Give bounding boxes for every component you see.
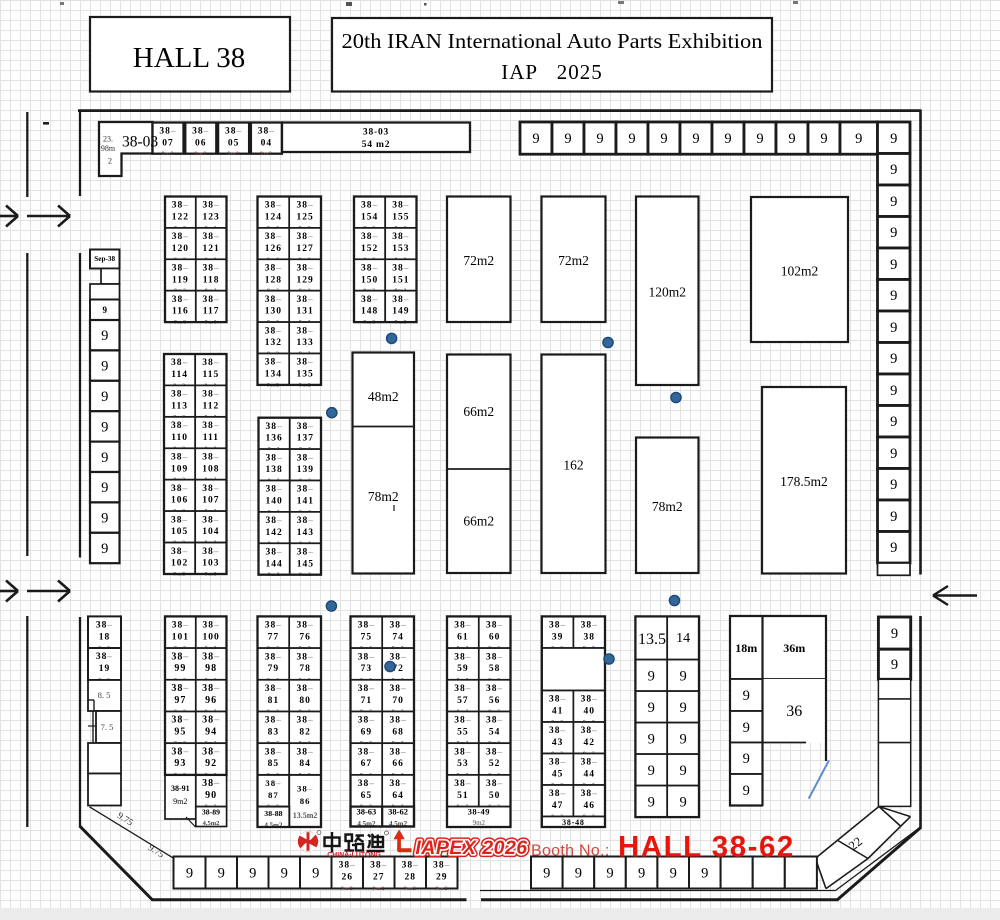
svg-text:151: 151	[392, 275, 409, 285]
svg-text:9: 9	[756, 131, 763, 147]
svg-text:107: 107	[202, 496, 219, 506]
svg-text:4.5m2: 4.5m2	[203, 820, 220, 827]
svg-text:38–: 38–	[361, 295, 378, 305]
svg-text:38–: 38–	[202, 264, 219, 274]
svg-text:38–: 38–	[549, 621, 566, 631]
svg-text:57: 57	[457, 696, 469, 706]
svg-text:38–: 38–	[265, 747, 282, 757]
svg-text:149: 149	[392, 307, 409, 317]
svg-text:38–: 38–	[296, 201, 313, 211]
svg-text:13.5: 13.5	[638, 631, 666, 648]
svg-text:38–: 38–	[171, 651, 189, 662]
svg-text:38–: 38–	[202, 232, 219, 242]
svg-text:20th IRAN International Auto P: 20th IRAN International Auto Parts Exhib…	[342, 29, 764, 53]
svg-text:38–: 38–	[486, 716, 503, 726]
svg-text:38–: 38–	[581, 695, 598, 705]
svg-text:9: 9	[101, 328, 108, 344]
svg-text:38–: 38–	[258, 127, 275, 137]
svg-text:80: 80	[299, 696, 311, 706]
svg-text:129: 129	[296, 275, 313, 285]
svg-text:38–: 38–	[454, 716, 471, 726]
svg-text:9.75: 9.75	[146, 843, 166, 861]
svg-text:114: 114	[171, 370, 188, 380]
svg-text:131: 131	[296, 307, 313, 317]
svg-text:72m2: 72m2	[558, 253, 589, 268]
svg-text:19: 19	[99, 664, 111, 674]
svg-text:90: 90	[205, 790, 217, 801]
svg-text:38-89: 38-89	[202, 808, 220, 817]
svg-text:142: 142	[265, 528, 282, 538]
svg-text:38–: 38–	[171, 746, 189, 757]
svg-text:9: 9	[679, 668, 686, 684]
svg-text:38–: 38–	[486, 747, 503, 757]
svg-text:94: 94	[205, 727, 217, 738]
svg-text:38–: 38–	[202, 390, 219, 400]
svg-text:150: 150	[361, 275, 378, 285]
svg-text:38–: 38–	[297, 784, 313, 794]
svg-text:152: 152	[361, 244, 378, 254]
svg-text:38–: 38–	[358, 779, 375, 789]
svg-text:133: 133	[296, 338, 313, 348]
svg-text:9: 9	[660, 131, 667, 147]
svg-text:Booth No.:: Booth No.:	[531, 843, 610, 860]
svg-text:38–: 38–	[265, 548, 282, 558]
svg-text:9: 9	[743, 688, 750, 704]
svg-text:9: 9	[890, 320, 897, 336]
svg-text:38–: 38–	[549, 695, 566, 705]
svg-text:38–: 38–	[361, 264, 378, 274]
svg-text:81: 81	[268, 696, 280, 706]
svg-text:66: 66	[392, 759, 404, 769]
svg-text:54 m2: 54 m2	[362, 140, 391, 150]
svg-text:9: 9	[186, 866, 193, 882]
svg-text:2: 2	[108, 157, 112, 166]
svg-text:95: 95	[174, 727, 186, 738]
svg-text:101: 101	[172, 632, 189, 642]
svg-text:99: 99	[174, 663, 186, 674]
svg-text:38–: 38–	[202, 651, 220, 662]
svg-text:86: 86	[300, 796, 311, 806]
svg-text:9m2: 9m2	[195, 151, 207, 157]
svg-text:97: 97	[174, 695, 186, 706]
svg-text:38–: 38–	[296, 747, 313, 757]
svg-text:38–: 38–	[202, 201, 219, 211]
svg-text:38–: 38–	[296, 264, 313, 274]
svg-text:135: 135	[296, 370, 313, 380]
svg-text:9: 9	[679, 763, 686, 779]
svg-text:38–: 38–	[402, 861, 419, 871]
svg-text:HALL 38: HALL 38	[133, 42, 246, 74]
svg-text:9: 9	[606, 866, 613, 882]
svg-text:9: 9	[249, 866, 256, 882]
svg-text:9: 9	[891, 626, 898, 642]
svg-text:38–: 38–	[265, 485, 282, 495]
svg-text:9: 9	[701, 866, 708, 882]
svg-text:38–: 38–	[454, 684, 471, 694]
svg-text:9: 9	[890, 131, 897, 147]
svg-text:9: 9	[743, 720, 750, 736]
svg-text:9: 9	[101, 541, 108, 557]
svg-text:38–: 38–	[202, 547, 219, 557]
svg-text:38–: 38–	[296, 716, 313, 726]
svg-text:38–: 38–	[171, 515, 188, 525]
svg-text:9: 9	[788, 131, 795, 147]
svg-text:78: 78	[299, 664, 311, 674]
svg-text:9: 9	[628, 131, 635, 147]
svg-text:9: 9	[575, 866, 582, 882]
svg-text:9.75: 9.75	[115, 811, 135, 829]
svg-text:51: 51	[457, 791, 469, 801]
svg-text:162: 162	[563, 458, 583, 473]
svg-text:9: 9	[648, 763, 655, 779]
svg-text:9m2: 9m2	[227, 151, 239, 157]
svg-text:138: 138	[265, 465, 282, 475]
svg-text:38–: 38–	[265, 621, 282, 631]
svg-text:9: 9	[543, 866, 550, 882]
svg-text:123: 123	[202, 213, 219, 223]
svg-text:38–: 38–	[389, 747, 406, 757]
svg-text:83: 83	[268, 728, 280, 738]
svg-text:38–: 38–	[202, 421, 219, 431]
svg-text:38–: 38–	[225, 127, 242, 137]
svg-text:38–: 38–	[172, 201, 189, 211]
svg-text:18m: 18m	[735, 641, 757, 655]
svg-text:38–: 38–	[389, 684, 406, 694]
svg-text:38–: 38–	[265, 516, 282, 526]
svg-text:38–: 38–	[172, 264, 189, 274]
svg-text:103: 103	[202, 559, 219, 569]
svg-text:9: 9	[679, 700, 686, 716]
svg-text:60: 60	[489, 632, 501, 642]
svg-text:38–: 38–	[172, 621, 189, 631]
svg-text:38–: 38–	[392, 295, 409, 305]
svg-text:06: 06	[195, 139, 207, 149]
svg-text:9: 9	[101, 480, 108, 496]
svg-text:9: 9	[692, 131, 699, 147]
svg-text:121: 121	[202, 244, 219, 254]
svg-text:9: 9	[218, 866, 225, 882]
svg-text:38–: 38–	[171, 484, 188, 494]
svg-text:58: 58	[489, 664, 501, 674]
svg-text:38–: 38–	[454, 652, 471, 662]
svg-text:110: 110	[171, 433, 188, 443]
svg-text:66m2: 66m2	[463, 404, 494, 419]
svg-text:112: 112	[203, 401, 220, 411]
svg-text:38–: 38–	[265, 652, 282, 662]
svg-text:9: 9	[855, 131, 862, 147]
svg-text:38–: 38–	[296, 358, 313, 368]
svg-text:38–: 38–	[265, 295, 282, 305]
svg-text:9: 9	[890, 162, 897, 178]
svg-text:9m2: 9m2	[436, 886, 448, 892]
svg-text:136: 136	[265, 434, 282, 444]
svg-text:38–: 38–	[265, 264, 282, 274]
svg-text:38–: 38–	[296, 326, 313, 336]
svg-text:9: 9	[890, 509, 897, 525]
svg-text:108: 108	[202, 464, 219, 474]
svg-text:9: 9	[648, 794, 655, 810]
svg-text:38–: 38–	[361, 201, 378, 211]
svg-text:7. 5: 7. 5	[101, 722, 114, 732]
svg-text:9m2: 9m2	[173, 797, 187, 806]
svg-text:75: 75	[361, 632, 373, 642]
svg-text:38–: 38–	[392, 232, 409, 242]
svg-text:9: 9	[648, 731, 655, 747]
svg-text:120m2: 120m2	[648, 285, 686, 300]
svg-text:38–: 38–	[172, 232, 189, 242]
svg-text:70: 70	[392, 696, 404, 706]
svg-text:36: 36	[786, 703, 802, 720]
svg-text:9: 9	[679, 794, 686, 810]
svg-text:38–: 38–	[265, 358, 282, 368]
svg-text:115: 115	[203, 370, 220, 380]
svg-text:38–: 38–	[172, 295, 189, 305]
svg-text:38–: 38–	[297, 453, 314, 463]
svg-text:93: 93	[174, 758, 186, 769]
svg-text:07: 07	[162, 139, 174, 149]
svg-text:85: 85	[268, 759, 280, 769]
svg-text:96: 96	[205, 695, 217, 706]
svg-text:9: 9	[820, 131, 827, 147]
svg-text:38–: 38–	[358, 716, 375, 726]
svg-text:105: 105	[171, 527, 188, 537]
svg-text:56: 56	[489, 696, 501, 706]
svg-text:9: 9	[532, 131, 539, 147]
svg-text:27: 27	[373, 873, 385, 883]
svg-text:9: 9	[101, 359, 108, 375]
svg-text:53: 53	[457, 759, 469, 769]
svg-text:141: 141	[297, 497, 314, 507]
svg-text:9: 9	[670, 866, 677, 882]
svg-text:119: 119	[172, 275, 189, 285]
svg-text:144: 144	[265, 559, 282, 569]
svg-text:9: 9	[743, 783, 750, 799]
svg-text:38–: 38–	[297, 548, 314, 558]
svg-text:9: 9	[890, 288, 897, 304]
svg-text:78m2: 78m2	[368, 489, 399, 504]
svg-text:148: 148	[361, 307, 378, 317]
svg-text:145: 145	[297, 559, 314, 569]
svg-text:87: 87	[268, 790, 279, 800]
svg-text:38–: 38–	[370, 861, 387, 871]
svg-text:38–: 38–	[171, 715, 189, 726]
svg-text:38–: 38–	[265, 326, 282, 336]
svg-text:92: 92	[205, 758, 217, 769]
svg-text:116: 116	[172, 307, 189, 317]
svg-text:98m: 98m	[101, 144, 116, 153]
svg-text:CHINA-LUTONG: CHINA-LUTONG	[327, 851, 381, 858]
svg-text:76: 76	[299, 632, 311, 642]
svg-text:113: 113	[171, 401, 188, 411]
svg-text:72m2: 72m2	[463, 253, 494, 268]
svg-text:38–: 38–	[389, 779, 406, 789]
svg-text:38–: 38–	[581, 789, 598, 799]
svg-text:38–: 38–	[265, 778, 281, 788]
svg-text:106: 106	[171, 496, 188, 506]
svg-text:38–: 38–	[171, 390, 188, 400]
svg-text:9: 9	[596, 131, 603, 147]
svg-text:9: 9	[638, 866, 645, 882]
svg-text:77: 77	[268, 632, 280, 642]
svg-text:38–: 38–	[171, 453, 188, 463]
svg-text:38-03: 38-03	[363, 128, 389, 138]
svg-text:38–: 38–	[96, 652, 113, 662]
svg-text:38–: 38–	[265, 684, 282, 694]
svg-text:66m2: 66m2	[463, 514, 494, 529]
svg-text:Sep-38: Sep-38	[94, 255, 115, 263]
svg-text:130: 130	[265, 307, 282, 317]
svg-text:9: 9	[281, 866, 288, 882]
svg-text:38–: 38–	[361, 232, 378, 242]
svg-text:128: 128	[265, 275, 282, 285]
svg-text:54: 54	[489, 728, 501, 738]
svg-text:38–: 38–	[265, 453, 282, 463]
svg-text:9: 9	[101, 511, 108, 527]
svg-text:9: 9	[312, 866, 319, 882]
svg-text:140: 140	[265, 497, 282, 507]
svg-text:139: 139	[297, 465, 314, 475]
svg-text:38–: 38–	[581, 621, 598, 631]
svg-text:9: 9	[101, 450, 108, 466]
svg-text:71: 71	[361, 696, 373, 706]
svg-text:38–: 38–	[296, 684, 313, 694]
svg-text:9: 9	[724, 131, 731, 147]
svg-text:38–: 38–	[486, 652, 503, 662]
svg-text:61: 61	[457, 632, 469, 642]
svg-text:38–: 38–	[454, 747, 471, 757]
svg-text:38-62: 38-62	[388, 807, 408, 817]
svg-text:38–: 38–	[549, 726, 566, 736]
svg-text:38–: 38–	[358, 652, 375, 662]
svg-text:102: 102	[171, 559, 188, 569]
svg-text:38-63: 38-63	[356, 807, 376, 817]
svg-text:9m2: 9m2	[162, 151, 174, 157]
svg-text:155: 155	[392, 213, 409, 223]
svg-text:124: 124	[265, 213, 282, 223]
svg-text:9: 9	[648, 668, 655, 684]
svg-text:44: 44	[583, 770, 595, 780]
svg-text:9: 9	[890, 540, 897, 556]
svg-text:38–: 38–	[392, 264, 409, 274]
svg-text:36m: 36m	[783, 641, 805, 655]
svg-text:9: 9	[101, 419, 108, 435]
svg-text:42: 42	[583, 738, 595, 748]
svg-text:14: 14	[676, 631, 690, 646]
svg-text:38–: 38–	[96, 621, 113, 631]
svg-text:38–: 38–	[265, 232, 282, 242]
svg-text:48m2: 48m2	[368, 389, 399, 404]
svg-text:38–: 38–	[389, 652, 406, 662]
svg-text:9: 9	[890, 414, 897, 430]
svg-text:98: 98	[205, 663, 217, 674]
svg-text:38–: 38–	[358, 621, 375, 631]
svg-text:50: 50	[489, 791, 501, 801]
svg-text:67: 67	[361, 759, 373, 769]
svg-text:38: 38	[583, 632, 595, 642]
svg-text:84: 84	[299, 759, 311, 769]
svg-text:38–: 38–	[202, 484, 219, 494]
svg-text:153: 153	[392, 244, 409, 254]
svg-text:9m2: 9m2	[260, 151, 272, 157]
svg-text:47: 47	[552, 801, 564, 811]
svg-text:64: 64	[392, 791, 404, 801]
svg-text:9: 9	[648, 700, 655, 716]
svg-text:9m2: 9m2	[373, 886, 385, 892]
svg-text:39: 39	[552, 632, 564, 642]
svg-text:38–: 38–	[296, 621, 313, 631]
svg-text:52: 52	[489, 759, 501, 769]
svg-text:127: 127	[296, 244, 313, 254]
svg-text:38–: 38–	[171, 547, 188, 557]
svg-text:28: 28	[404, 873, 416, 883]
svg-text:9: 9	[891, 657, 898, 673]
svg-text:38–: 38–	[202, 453, 219, 463]
svg-text:38–: 38–	[358, 747, 375, 757]
svg-text:38–: 38–	[265, 422, 282, 432]
svg-text:45: 45	[552, 770, 564, 780]
svg-text:9: 9	[890, 351, 897, 367]
svg-text:38–: 38–	[202, 683, 220, 694]
svg-text:125: 125	[296, 213, 313, 223]
svg-text:38–: 38–	[202, 778, 220, 789]
svg-text:118: 118	[203, 275, 220, 285]
svg-text:38–: 38–	[159, 127, 176, 137]
svg-text:9: 9	[564, 131, 571, 147]
svg-text:79: 79	[268, 664, 280, 674]
svg-text:100: 100	[202, 632, 219, 642]
svg-text:38–: 38–	[296, 295, 313, 305]
svg-text:82: 82	[299, 728, 311, 738]
svg-text:38–: 38–	[192, 127, 209, 137]
svg-text:38–: 38–	[202, 621, 219, 631]
svg-text:9: 9	[890, 446, 897, 462]
svg-text:26: 26	[341, 873, 353, 883]
svg-text:38-03: 38-03	[122, 134, 158, 151]
svg-text:IAPEX 2026: IAPEX 2026	[415, 837, 527, 859]
svg-text:68: 68	[392, 728, 404, 738]
svg-text:143: 143	[297, 528, 314, 538]
svg-text:9m2: 9m2	[404, 886, 416, 892]
svg-text:78m2: 78m2	[652, 499, 683, 514]
svg-text:38–: 38–	[202, 515, 219, 525]
svg-text:38–: 38–	[297, 516, 314, 526]
svg-text:9: 9	[890, 257, 897, 273]
svg-text:109: 109	[171, 464, 188, 474]
svg-text:38–: 38–	[392, 201, 409, 211]
svg-text:73: 73	[361, 664, 373, 674]
svg-text:69: 69	[361, 728, 373, 738]
svg-text:38–: 38–	[454, 621, 471, 631]
svg-text:38–: 38–	[171, 421, 188, 431]
svg-text:38–: 38–	[265, 201, 282, 211]
svg-text:HALL 38-62: HALL 38-62	[618, 831, 795, 864]
svg-text:38–: 38–	[171, 683, 189, 694]
svg-text:154: 154	[361, 213, 378, 223]
svg-text:38–: 38–	[433, 861, 450, 871]
svg-text:38–: 38–	[389, 621, 406, 631]
svg-text:4.5m2: 4.5m2	[264, 822, 283, 830]
svg-text:38–: 38–	[202, 715, 220, 726]
svg-text:43: 43	[552, 738, 564, 748]
svg-text:9: 9	[743, 751, 750, 767]
svg-text:38–: 38–	[202, 746, 220, 757]
svg-text:38–: 38–	[265, 716, 282, 726]
svg-text:9: 9	[679, 731, 686, 747]
svg-text:38-49: 38-49	[468, 807, 490, 817]
svg-text:38–: 38–	[296, 232, 313, 242]
svg-text:38–: 38–	[581, 758, 598, 768]
svg-text:IAP 2025: IAP 2025	[501, 60, 603, 84]
